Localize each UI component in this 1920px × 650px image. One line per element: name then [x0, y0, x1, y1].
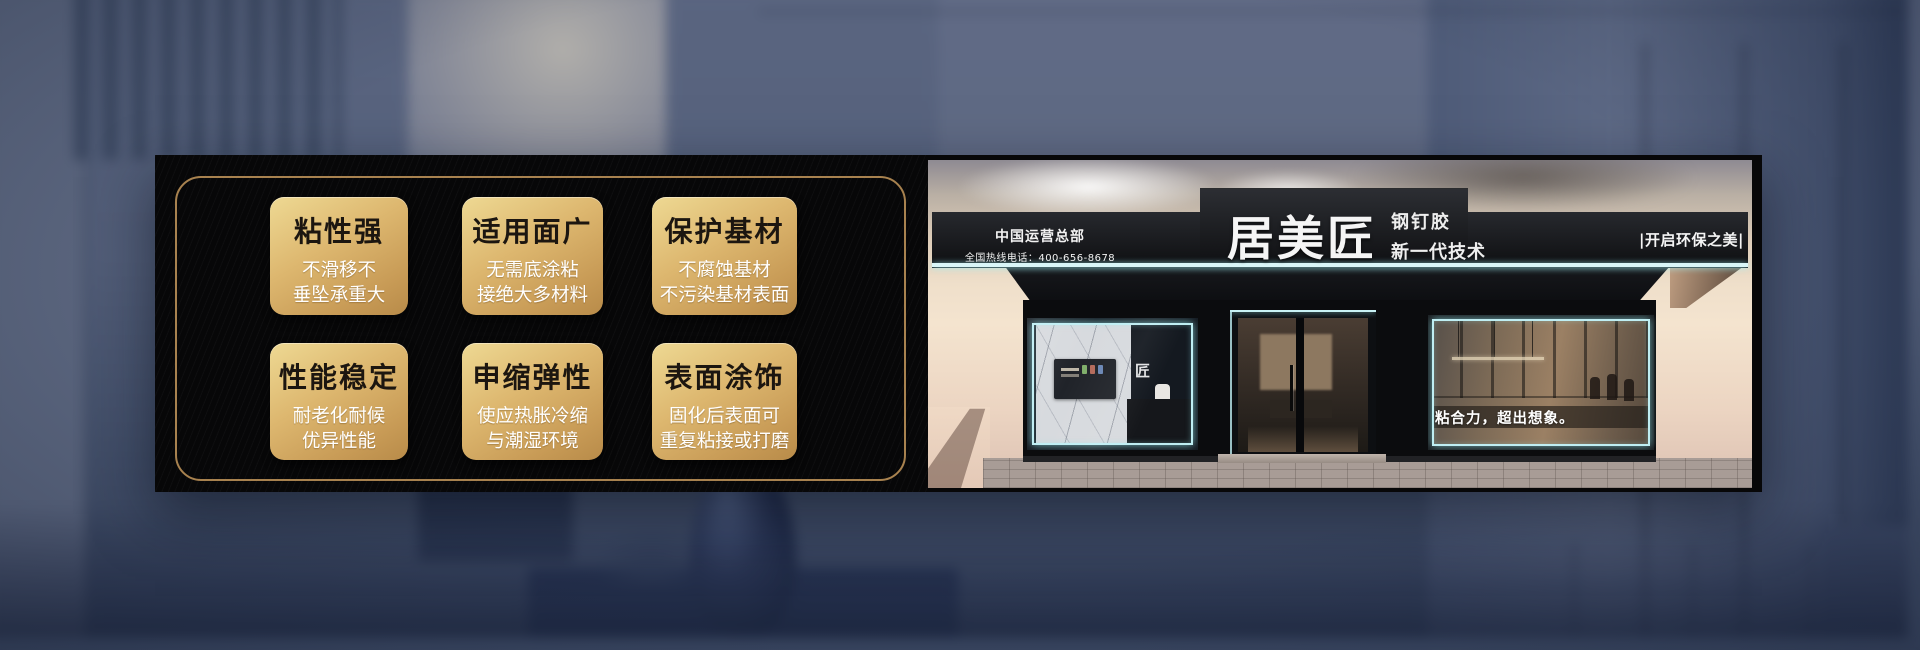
brand-tech: 新一代技术	[1391, 238, 1486, 264]
entrance-steps	[1218, 454, 1386, 463]
feature-card-subtitle: 耐老化耐候 优异性能	[270, 404, 408, 454]
feature-card-wide-use: 适用面广 无需底涂粘 接绝大多材料	[462, 197, 603, 315]
door-led-edge	[1230, 310, 1232, 455]
feature-card-protect-substrate: 保护基材 不腐蚀基材 不污染基材表面	[652, 197, 797, 315]
feature-card-subtitle: 不滑移不 垂坠承重大	[270, 258, 408, 308]
eco-slogan: |开启环保之美|	[1632, 229, 1744, 250]
display-window-left: 匠	[1027, 318, 1198, 450]
hq-title: 中国运营总部	[940, 226, 1140, 246]
feature-card-title: 保护基材	[652, 210, 797, 250]
storefront-photo: 匠	[928, 160, 1752, 488]
feature-card-title: 申缩弹性	[462, 356, 603, 396]
glass-reflection	[1027, 318, 1198, 450]
display-window-right: 粘合力，超出想象。	[1428, 315, 1654, 450]
feature-card-subtitle: 无需底涂粘 接绝大多材料	[462, 258, 603, 308]
feature-card-surface-finish: 表面涂饰 固化后表面可 重复粘接或打磨	[652, 343, 797, 460]
feature-card-adhesion: 粘性强 不滑移不 垂坠承重大	[270, 197, 408, 315]
feature-card-title: 适用面广	[462, 210, 603, 250]
feature-card-stable: 性能稳定 耐老化耐候 优异性能	[270, 343, 408, 460]
feature-card-subtitle: 不腐蚀基材 不污染基材表面	[652, 258, 797, 308]
hotline-number: 全国热线电话：400-656-8678	[940, 249, 1140, 264]
hq-text-block: 中国运营总部 全国热线电话：400-656-8678	[940, 226, 1140, 264]
promo-banner: 粘性强 不滑移不 垂坠承重大 适用面广 无需底涂粘 接绝大多材料 保护基材 不腐…	[155, 155, 1762, 492]
feature-card-title: 表面涂饰	[652, 356, 797, 396]
brand-subtitle-block: 钢钉胶 新一代技术	[1391, 208, 1486, 264]
window-slogan: 粘合力，超出想象。	[1435, 407, 1575, 428]
feature-card-title: 粘性强	[270, 210, 408, 250]
entrance-door	[1230, 310, 1376, 455]
brand-name: 居美匠	[1227, 200, 1397, 269]
door-led-strip	[1230, 310, 1376, 312]
door-center-stile	[1296, 318, 1304, 452]
feature-card-subtitle: 固化后表面可 重复粘接或打磨	[652, 404, 797, 454]
feature-card-subtitle: 使应热胀冷缩 与潮湿环境	[462, 404, 603, 454]
feature-card-title: 性能稳定	[270, 356, 408, 396]
feature-card-elastic: 申缩弹性 使应热胀冷缩 与潮湿环境	[462, 343, 603, 460]
door-handle	[1290, 365, 1293, 411]
brand-product: 钢钉胶	[1391, 208, 1486, 234]
